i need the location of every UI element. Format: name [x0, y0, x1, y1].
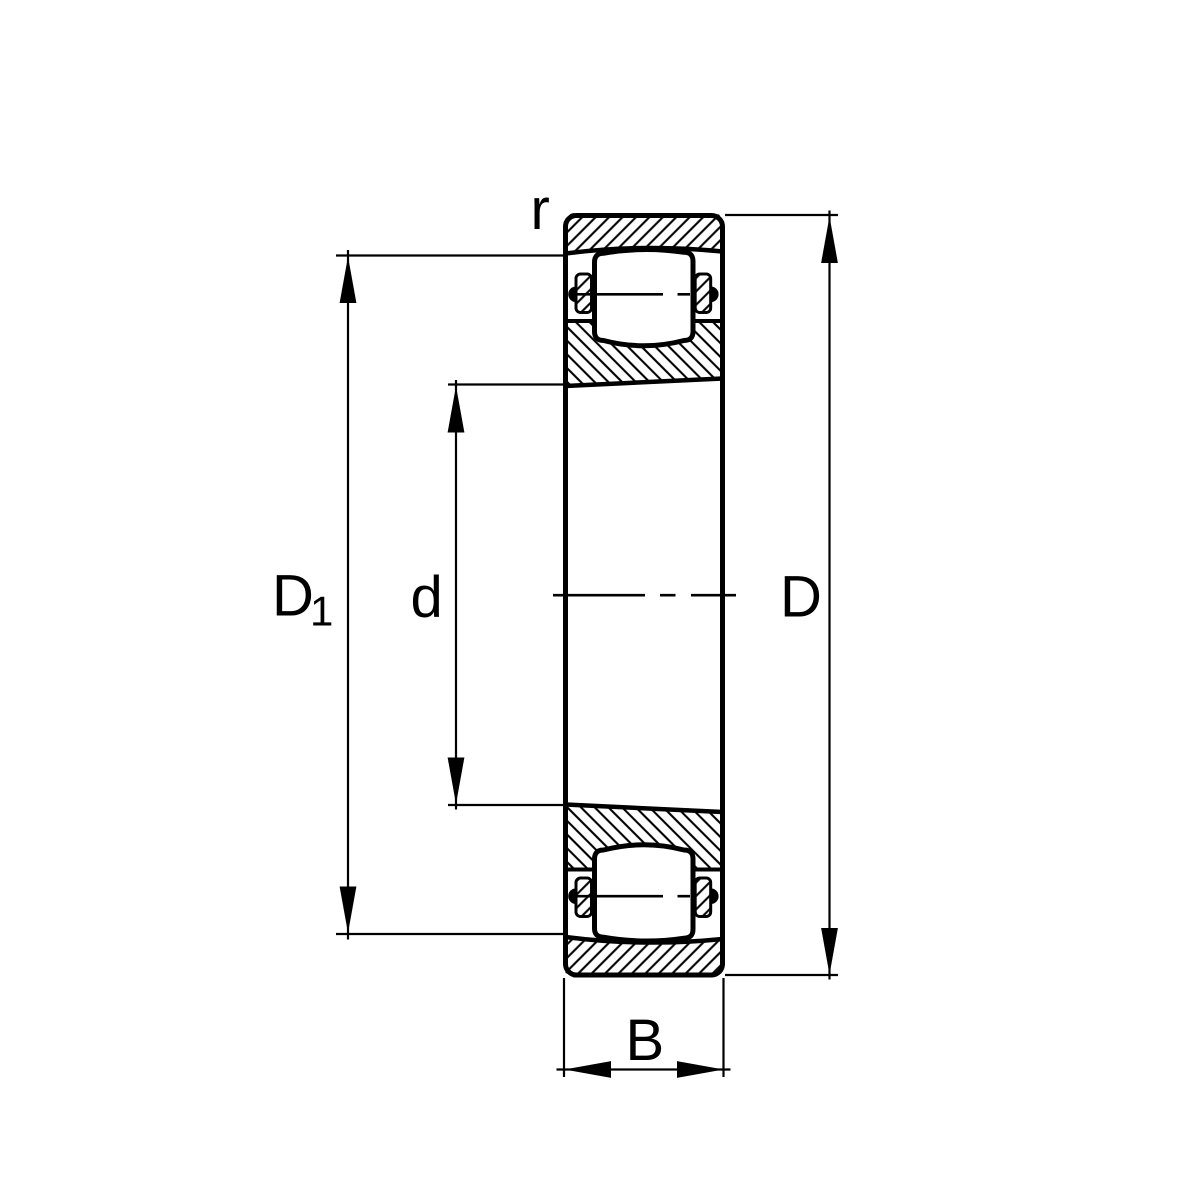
svg-text:B: B: [626, 1008, 665, 1073]
svg-text:D: D: [780, 565, 822, 630]
svg-text:1: 1: [310, 588, 333, 635]
svg-text:r: r: [531, 177, 550, 242]
svg-text:D: D: [272, 564, 314, 629]
svg-text:d: d: [411, 565, 443, 630]
